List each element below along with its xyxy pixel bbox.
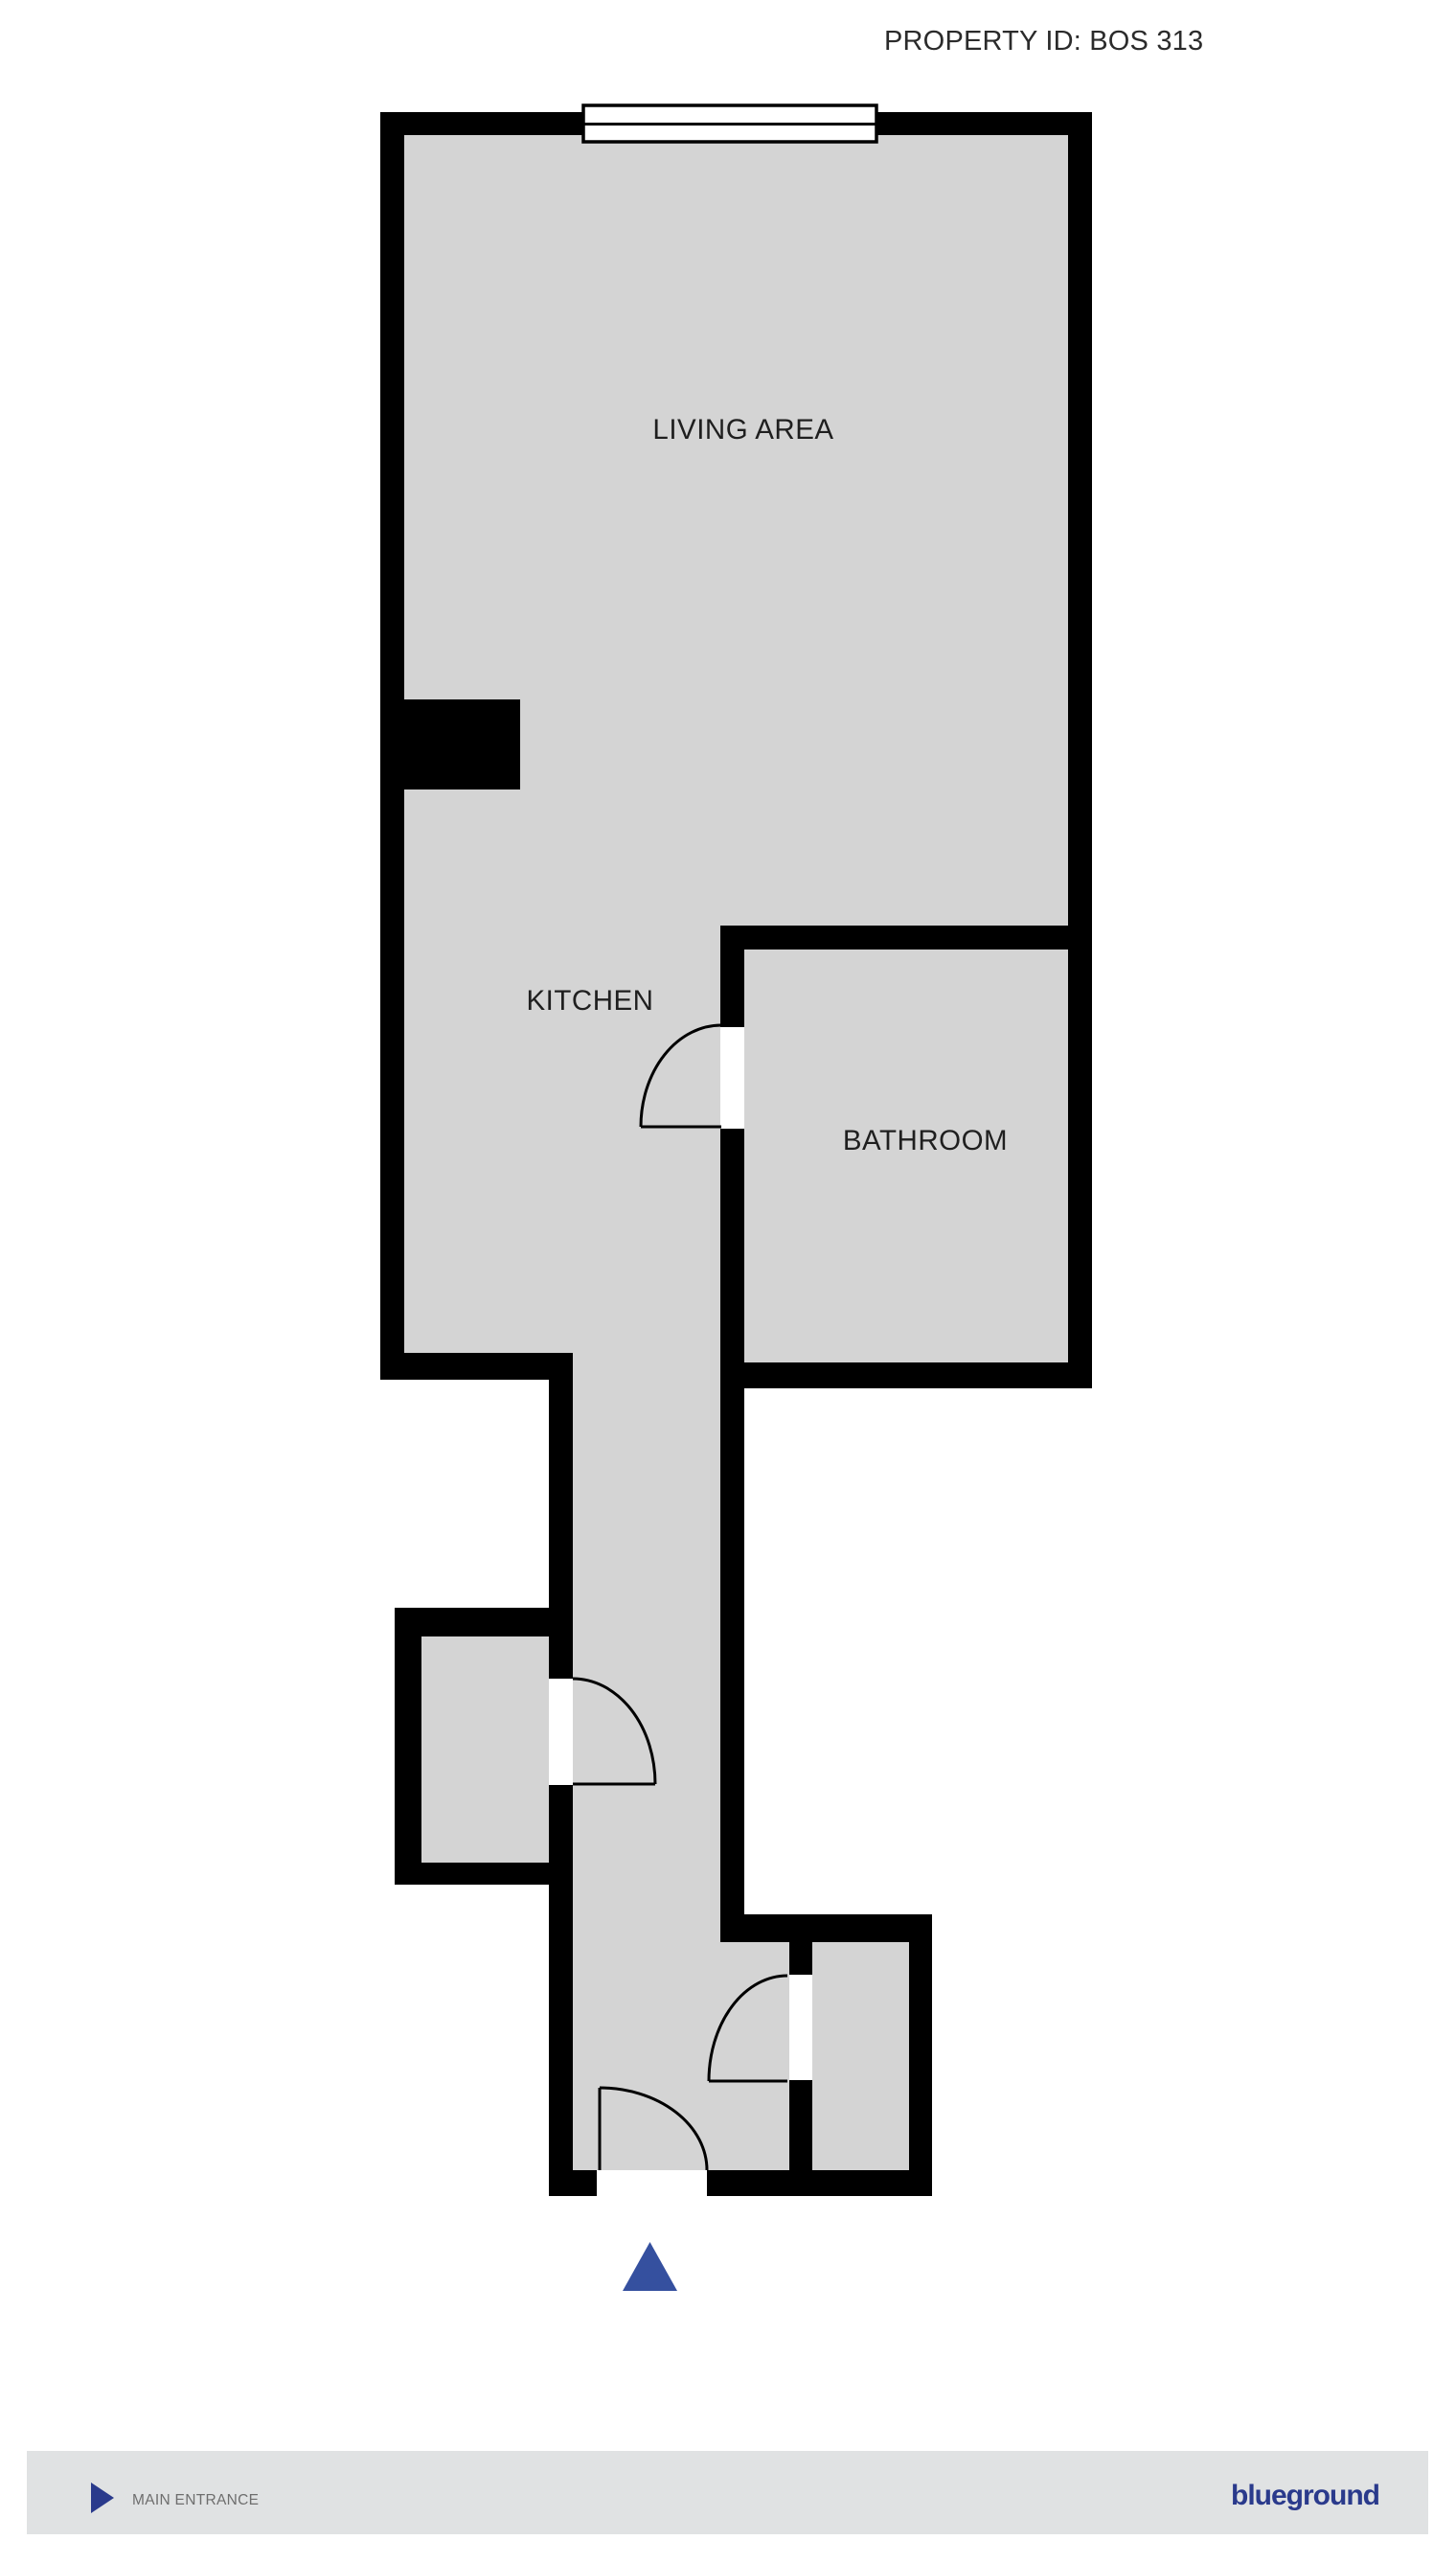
svg-text:BATHROOM: BATHROOM xyxy=(843,1125,1008,1156)
svg-text:PROPERTY ID: BOS 313: PROPERTY ID: BOS 313 xyxy=(884,26,1203,57)
svg-text:LIVING AREA: LIVING AREA xyxy=(652,414,833,446)
svg-text:blueground: blueground xyxy=(1231,2480,1379,2511)
svg-text:MAIN ENTRANCE: MAIN ENTRANCE xyxy=(132,2492,259,2508)
svg-text:KITCHEN: KITCHEN xyxy=(527,985,654,1017)
